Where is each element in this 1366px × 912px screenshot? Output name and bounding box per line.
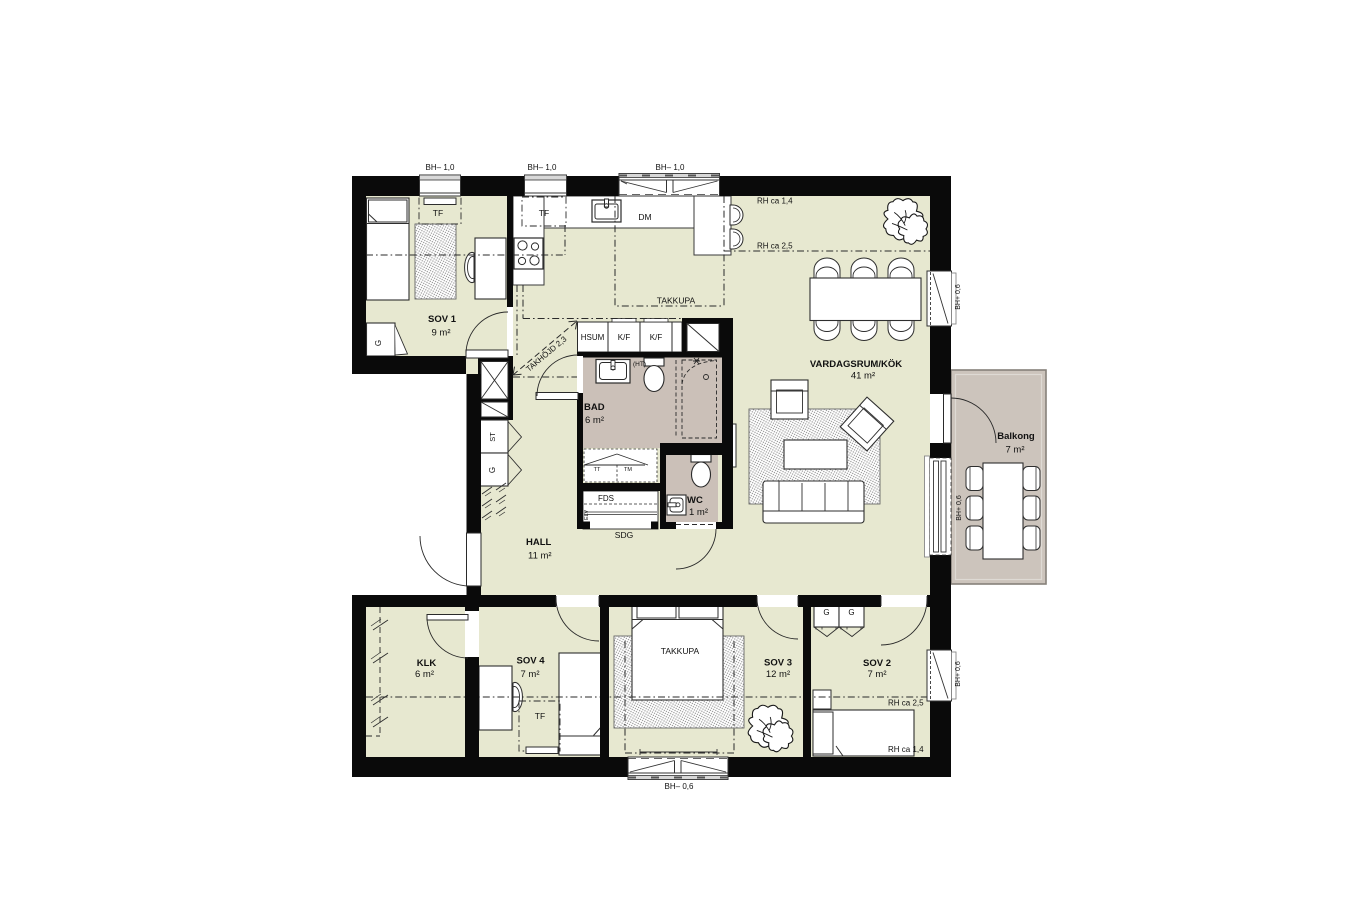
svg-text:(HT): (HT) xyxy=(633,361,646,368)
svg-text:BH+ 0,6: BH+ 0,6 xyxy=(955,284,962,310)
svg-text:SOV 2: SOV 2 xyxy=(863,658,891,669)
svg-text:12 m²: 12 m² xyxy=(766,669,790,680)
svg-text:K/F: K/F xyxy=(650,333,663,342)
svg-text:WC: WC xyxy=(687,495,703,506)
svg-text:41 m²: 41 m² xyxy=(851,371,875,382)
svg-text:RH ca 2,5: RH ca 2,5 xyxy=(757,242,793,251)
svg-text:7 m²: 7 m² xyxy=(868,669,887,680)
svg-text:FDS: FDS xyxy=(598,494,614,503)
svg-text:6 m²: 6 m² xyxy=(415,669,434,680)
svg-text:G: G xyxy=(374,340,383,346)
svg-text:BH+ 0,6: BH+ 0,6 xyxy=(956,495,963,521)
svg-text:7 m²: 7 m² xyxy=(1006,445,1025,456)
svg-text:ELV: ELV xyxy=(584,510,590,520)
svg-text:G: G xyxy=(848,608,854,617)
svg-text:TT: TT xyxy=(594,467,601,473)
svg-text:BH– 1,0: BH– 1,0 xyxy=(656,163,685,172)
svg-text:KLK: KLK xyxy=(417,658,437,669)
svg-text:RH ca 1,4: RH ca 1,4 xyxy=(757,197,793,206)
svg-text:SDG: SDG xyxy=(615,530,633,540)
svg-text:BH– 1,0: BH– 1,0 xyxy=(528,163,557,172)
svg-text:TM: TM xyxy=(624,467,632,473)
svg-text:7 m²: 7 m² xyxy=(521,669,540,680)
svg-text:Balkong: Balkong xyxy=(997,431,1035,442)
svg-text:TF: TF xyxy=(433,208,443,218)
svg-text:ST: ST xyxy=(488,432,497,442)
svg-text:VARDAGSRUM/KÖK: VARDAGSRUM/KÖK xyxy=(810,359,902,370)
svg-text:G: G xyxy=(823,608,829,617)
svg-text:TF: TF xyxy=(535,711,545,721)
svg-text:SOV 3: SOV 3 xyxy=(764,658,792,669)
svg-text:9 m²: 9 m² xyxy=(432,328,451,339)
svg-text:TAKKUPA: TAKKUPA xyxy=(661,646,700,656)
svg-text:DM: DM xyxy=(638,212,651,222)
svg-text:TAKKUPA: TAKKUPA xyxy=(657,296,696,306)
svg-text:K/F: K/F xyxy=(618,333,631,342)
svg-text:HALL: HALL xyxy=(526,537,552,548)
svg-text:TF: TF xyxy=(539,208,549,218)
svg-text:6 m²: 6 m² xyxy=(585,415,604,426)
svg-text:BH– 0,6: BH– 0,6 xyxy=(665,782,694,791)
svg-text:RH ca 2,5: RH ca 2,5 xyxy=(888,699,924,708)
svg-text:HSUM: HSUM xyxy=(581,333,605,342)
svg-text:BAD: BAD xyxy=(584,402,605,413)
svg-text:BH+ 0,6: BH+ 0,6 xyxy=(955,661,962,687)
svg-text:SOV 1: SOV 1 xyxy=(428,314,457,325)
svg-text:BH– 1,0: BH– 1,0 xyxy=(426,163,455,172)
svg-text:1 m²: 1 m² xyxy=(689,507,708,518)
svg-text:11 m²: 11 m² xyxy=(528,551,552,562)
svg-text:G: G xyxy=(488,467,497,473)
svg-text:RH ca 1,4: RH ca 1,4 xyxy=(888,745,924,754)
svg-text:SOV 4: SOV 4 xyxy=(517,656,546,667)
